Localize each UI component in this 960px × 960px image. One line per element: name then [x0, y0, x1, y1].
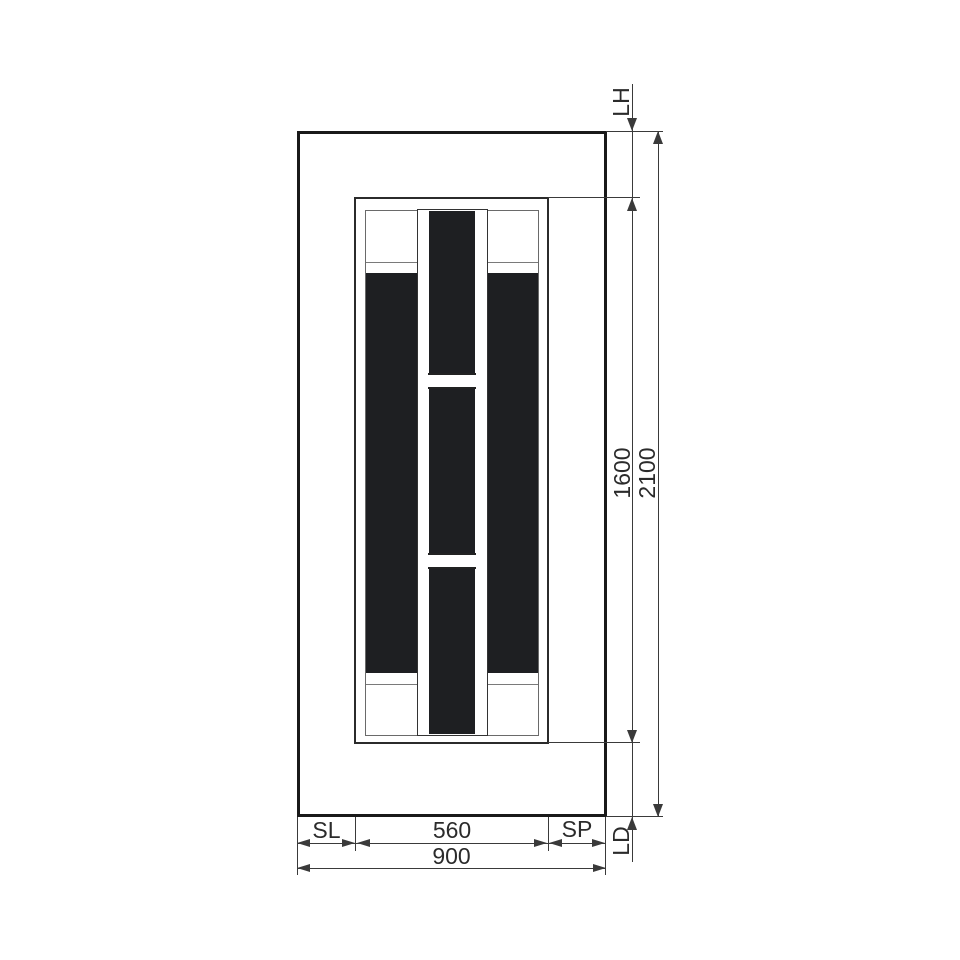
dim-label-900: 900	[297, 844, 606, 868]
right-bottom-divider-line	[487, 684, 538, 685]
left-bottom-divider-line	[366, 684, 417, 685]
arrowhead-2100-top-icon	[653, 131, 663, 144]
center-stile-stripe-lower	[428, 553, 476, 569]
center-stile-stripe-upper	[428, 373, 476, 389]
dim-label-1600: 1600	[610, 423, 634, 523]
right-top-divider-line	[487, 262, 538, 263]
dim-label-2100: 2100	[635, 423, 659, 523]
door-drawing-canvas: LH 1600 2100 LD SL 560 SP 900	[0, 0, 960, 960]
center-stile-dark-infill	[429, 211, 475, 734]
arrowhead-1600-bottom-icon	[627, 730, 637, 743]
dim-label-sp: SP	[548, 817, 606, 841]
dim-label-lh: LH	[609, 52, 633, 152]
dim-label-ld: LD	[609, 791, 633, 891]
dim-label-560: 560	[356, 818, 548, 842]
dim-label-sl: SL	[297, 818, 356, 842]
right-glass-panel	[487, 273, 538, 673]
arrowhead-2100-bottom-icon	[653, 804, 663, 817]
arrowhead-1600-top-icon	[627, 198, 637, 211]
left-glass-panel	[366, 273, 417, 673]
left-top-divider-line	[366, 262, 417, 263]
